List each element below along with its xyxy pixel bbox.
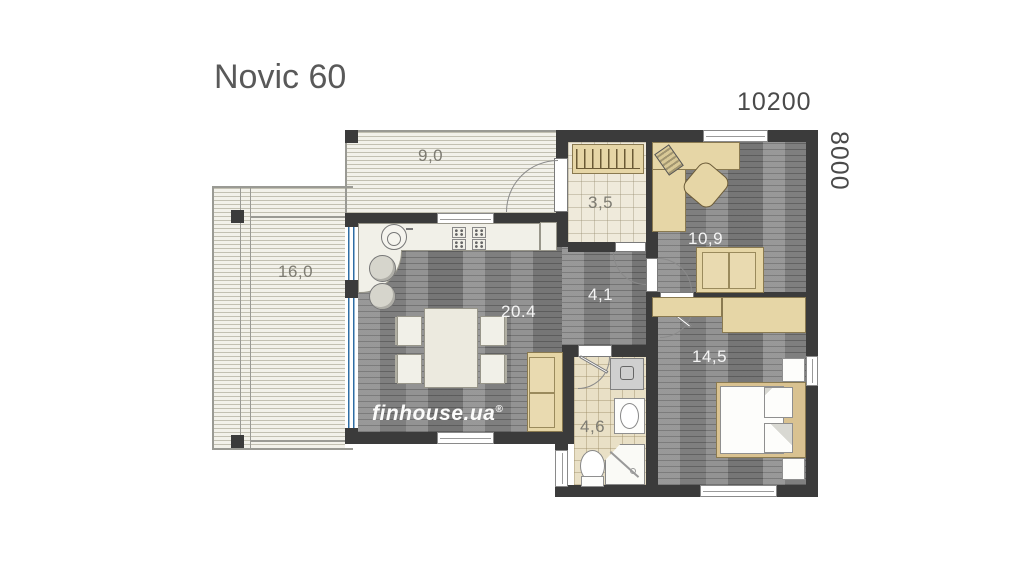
width-dimension-label: 10200 (737, 88, 812, 117)
bathroom-living-wall (562, 345, 574, 444)
bathroom-window (555, 450, 568, 487)
terrace-post-top (231, 210, 244, 223)
nightstand-bottom (782, 458, 805, 480)
brand-logo: finhouse.ua® (372, 402, 503, 426)
entry-area-label: 3,5 (588, 193, 613, 213)
living-sofa-cushion-2 (529, 393, 555, 428)
deck-top-edge (345, 130, 558, 132)
bed-pillow-2 (764, 423, 793, 453)
fridge (540, 222, 557, 251)
office-door (646, 258, 658, 292)
bar-stool-2 (369, 283, 396, 310)
dining-chair-2 (397, 354, 422, 384)
deck-corner-post (345, 130, 358, 143)
bedroom-bottom-window (700, 485, 777, 497)
dining-chair-4 (480, 354, 505, 384)
entry-wardrobe-hangers (576, 149, 640, 169)
floorplan-canvas: Novic 60 10200 8000 (0, 0, 1024, 569)
bathroom-area-label: 4,6 (580, 417, 605, 437)
stove-burner-1 (452, 227, 466, 238)
terrace-beam-line-1 (240, 188, 241, 448)
washing-machine-icon (620, 366, 634, 380)
office-sofa-cushion-1 (702, 252, 729, 289)
terrace-beam-line-2 (250, 188, 251, 448)
bathroom-door (578, 345, 612, 357)
side-terrace-floor (214, 188, 345, 448)
bath-sink-bowl (620, 403, 639, 429)
stove-burner-4 (472, 239, 486, 250)
top-wall (556, 130, 818, 142)
terrace-left-edge (212, 186, 214, 450)
terrace-top-beam (250, 216, 345, 218)
office-top-window (703, 130, 768, 142)
kitchen-sink-basin (387, 232, 401, 246)
bed-pillow-1 (764, 387, 793, 418)
deck-area-label: 9,0 (418, 146, 443, 166)
bedroom-area-label: 14,5 (692, 347, 727, 367)
glazing-post-bottom (345, 428, 358, 444)
entry-hall-door (615, 242, 646, 252)
height-dimension-label: 8000 (824, 131, 853, 191)
bathroom-bedroom-wall (646, 304, 658, 485)
registered-mark: ® (495, 404, 503, 415)
bar-stool-1 (369, 255, 396, 282)
office-area-label: 10,9 (688, 229, 723, 249)
living-bottom-window (437, 432, 494, 444)
stove-burner-2 (472, 227, 486, 238)
shower-drain (630, 468, 636, 474)
plan-title: Novic 60 (214, 58, 346, 97)
terrace-area-label: 16,0 (278, 262, 313, 282)
glazing-post-top (345, 213, 358, 227)
hallway-area-label: 4,1 (588, 285, 613, 305)
dining-chair-1 (397, 316, 422, 346)
kitchen-tap (406, 228, 413, 230)
terrace-top-edge (212, 186, 353, 188)
terrace-post-bottom (231, 435, 244, 448)
glazing-post-middle (345, 280, 358, 298)
living-area-label: 20.4 (501, 302, 536, 322)
living-sofa-cushion-1 (529, 357, 555, 393)
terrace-bottom-beam (250, 440, 345, 442)
bedroom-wardrobe-right (722, 297, 806, 333)
nightstand-top (782, 358, 805, 382)
bedroom-wardrobe-left (652, 297, 722, 317)
toilet-tank (581, 476, 604, 487)
terrace-bottom-edge (212, 448, 353, 450)
brand-logo-text: finhouse.ua (372, 402, 495, 425)
office-sofa-cushion-2 (729, 252, 756, 289)
right-wall (806, 130, 818, 497)
bedroom-side-window (806, 356, 818, 386)
dining-table (424, 308, 478, 388)
living-glass-wall (345, 213, 358, 444)
entry-bottom-wall (568, 242, 615, 252)
stove-burner-3 (452, 239, 466, 250)
office-desk-return (652, 169, 686, 232)
